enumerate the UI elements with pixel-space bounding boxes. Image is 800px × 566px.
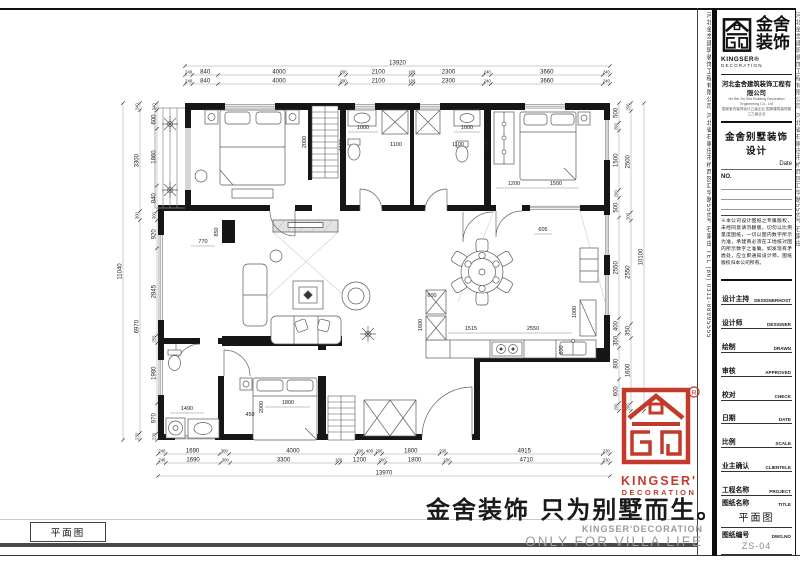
svg-text:1515: 1515 xyxy=(465,326,477,332)
svg-text:300: 300 xyxy=(222,458,230,463)
svg-text:400: 400 xyxy=(614,320,620,331)
title-block: 金舍 装饰 KINGSER® DECORATION 河北金舍建筑装饰工程有限公司… xyxy=(718,10,795,555)
svg-text:300: 300 xyxy=(135,211,140,219)
watermark-en-line2: ONLY FOR VILLA LIFE xyxy=(400,534,703,549)
lamp-icon xyxy=(289,114,296,121)
title-block-field: 工程名称PROJECT xyxy=(721,472,792,496)
svg-text:230: 230 xyxy=(135,432,140,440)
svg-text:240: 240 xyxy=(603,79,611,84)
svg-text:240: 240 xyxy=(484,70,492,75)
svg-text:3300: 3300 xyxy=(277,458,291,464)
kitchen xyxy=(426,290,596,358)
svg-text:1000: 1000 xyxy=(461,125,473,131)
field-label-en: PROJECT xyxy=(769,489,791,494)
field-label-cn: 比例 xyxy=(722,436,736,446)
svg-text:1600: 1600 xyxy=(626,363,632,377)
kingser-red-seal: R KINGSER' DECORATION xyxy=(616,384,702,498)
svg-text:600: 600 xyxy=(152,114,158,125)
date-label: Date xyxy=(721,161,792,170)
svg-text:1000: 1000 xyxy=(572,306,578,318)
svg-text:350: 350 xyxy=(626,325,632,336)
svg-text:2500: 2500 xyxy=(626,154,632,168)
sideboard xyxy=(580,248,598,282)
field-label-cn: 设计主持 xyxy=(722,293,749,303)
field-label-cn: 日期 xyxy=(722,412,736,422)
svg-text:13920: 13920 xyxy=(389,61,406,67)
title-block-field: 图纸编号DWG.NOZS-04 xyxy=(721,528,792,555)
field-label-cn: 业主确认 xyxy=(722,460,749,470)
field-label-en: CLIENTELE xyxy=(765,465,791,470)
svg-text:1690: 1690 xyxy=(186,458,200,464)
side-text-right: 河北金舍建筑装饰工程有限公司 河北省石家庄市桥西区汇华路556号 石家庄 xyxy=(796,12,800,552)
svg-text:600: 600 xyxy=(559,345,565,354)
svg-text:2100: 2100 xyxy=(372,70,386,76)
dining-table xyxy=(450,239,513,305)
bathroom-1 xyxy=(348,110,408,160)
svg-text:2000: 2000 xyxy=(259,401,265,413)
field-value: 平面图 xyxy=(722,507,791,526)
title-block-field: 设计师DESIGNER xyxy=(721,305,792,329)
stairs-upper xyxy=(312,106,338,178)
no-line xyxy=(721,190,792,200)
svg-text:840: 840 xyxy=(200,79,211,85)
field-label-en: CHECK xyxy=(775,394,791,399)
svg-text:200: 200 xyxy=(340,70,348,75)
drawing-name-box: 平面图 xyxy=(30,522,106,542)
brand-cn-line2: 装饰 xyxy=(756,35,790,53)
watermark-en: KINGSER'DECORATION ONLY FOR VILLA LIFE xyxy=(400,524,703,549)
svg-text:500: 500 xyxy=(614,107,620,118)
tv-wall xyxy=(273,220,338,232)
living-room xyxy=(243,250,376,344)
no-line xyxy=(721,200,792,210)
svg-text:230: 230 xyxy=(152,432,157,440)
svg-text:230: 230 xyxy=(603,449,611,454)
svg-text:11040: 11040 xyxy=(118,263,124,280)
svg-text:100: 100 xyxy=(335,458,343,463)
svg-text:2845: 2845 xyxy=(152,284,158,298)
field-label-en: SCALE xyxy=(775,441,791,446)
svg-text:850: 850 xyxy=(214,227,220,236)
svg-text:6970: 6970 xyxy=(135,319,141,333)
laundry-bath xyxy=(166,350,219,438)
svg-text:800: 800 xyxy=(614,358,620,369)
svg-text:240: 240 xyxy=(158,458,166,463)
lamp-icon xyxy=(208,114,215,121)
svg-text:240: 240 xyxy=(152,103,157,111)
field-label-en: DRAWN xyxy=(774,346,791,351)
svg-text:1600: 1600 xyxy=(418,319,424,331)
svg-text:4710: 4710 xyxy=(520,458,534,464)
svg-text:13970: 13970 xyxy=(376,471,393,477)
svg-text:200: 200 xyxy=(379,458,387,463)
master-bed xyxy=(220,110,285,198)
company-name-en: He Bei Jin She Building Decoration Engin… xyxy=(721,97,792,107)
svg-text:2100: 2100 xyxy=(372,79,386,85)
svg-text:1800: 1800 xyxy=(404,449,418,455)
svg-text:R: R xyxy=(691,390,696,397)
title-block-logo: 金舍 装饰 xyxy=(721,10,792,54)
plant-icon xyxy=(360,326,376,342)
svg-text:255: 255 xyxy=(152,335,157,343)
svg-text:1860: 1860 xyxy=(152,150,158,164)
svg-text:1100: 1100 xyxy=(390,142,402,148)
svg-text:4000: 4000 xyxy=(272,70,286,76)
field-label-en: APPROVED xyxy=(765,370,791,375)
field-label-cn: 审核 xyxy=(722,365,736,375)
field-label-cn: 绘制 xyxy=(722,341,736,351)
title-block-field: 比例SCALE xyxy=(721,424,792,448)
bedroom2 xyxy=(494,112,590,180)
stairs-lower xyxy=(328,396,355,440)
kingser-seal-icon: R xyxy=(616,384,702,468)
svg-text:1500: 1500 xyxy=(550,181,562,187)
svg-text:3300: 3300 xyxy=(135,153,141,167)
field-label-cn: 图纸编号 xyxy=(722,529,749,539)
svg-text:840: 840 xyxy=(152,193,158,204)
no-line xyxy=(721,180,792,190)
svg-text:1285: 1285 xyxy=(484,140,490,152)
title-block-field: 设计主持DESIGNERHOST xyxy=(721,281,792,305)
svg-text:920: 920 xyxy=(152,229,158,240)
sheet-border-top xyxy=(0,8,796,10)
svg-text:240: 240 xyxy=(185,79,193,84)
svg-text:200: 200 xyxy=(626,103,631,111)
svg-text:200: 200 xyxy=(439,449,447,454)
svg-text:450: 450 xyxy=(245,412,254,418)
svg-text:1690: 1690 xyxy=(186,449,200,455)
svg-text:1470: 1470 xyxy=(320,406,326,418)
svg-text:1000: 1000 xyxy=(357,125,369,131)
svg-text:1100: 1100 xyxy=(339,139,345,151)
project-title: 金舍别墅装饰设计 xyxy=(721,121,792,161)
svg-text:770: 770 xyxy=(198,239,207,245)
bedroom3 xyxy=(240,378,317,440)
svg-text:605: 605 xyxy=(538,227,547,233)
svg-text:970: 970 xyxy=(152,413,158,424)
svg-text:2550: 2550 xyxy=(614,261,620,275)
svg-text:100: 100 xyxy=(408,70,416,75)
svg-text:200: 200 xyxy=(626,212,631,220)
watermark-en-line1: KINGSER'DECORATION xyxy=(400,524,703,534)
svg-text:2300: 2300 xyxy=(442,79,456,85)
kingser-red-text: KINGSER' xyxy=(616,474,702,488)
svg-text:300: 300 xyxy=(152,211,157,219)
svg-text:600: 600 xyxy=(427,293,436,299)
title-block-field: 图纸名称TITLE平面图 xyxy=(721,496,792,528)
field-label-cn: 工程名称 xyxy=(722,484,749,494)
title-block-field: 审核APPROVED xyxy=(721,353,792,377)
svg-text:200: 200 xyxy=(340,79,348,84)
svg-text:840: 840 xyxy=(200,70,211,76)
svg-text:10100: 10100 xyxy=(639,248,645,265)
title-block-field: 绘制DRAWN xyxy=(721,329,792,353)
svg-text:240: 240 xyxy=(135,103,140,111)
field-label-cn: 设计师 xyxy=(722,317,742,327)
brand-en-sub: DECORATION xyxy=(721,63,792,68)
title-block-field: 日期DATE xyxy=(721,401,792,425)
chair xyxy=(195,170,207,182)
svg-text:200: 200 xyxy=(375,449,383,454)
tv xyxy=(288,223,323,228)
svg-text:2550: 2550 xyxy=(527,326,539,332)
svg-text:1490: 1490 xyxy=(181,406,193,412)
svg-text:1100: 1100 xyxy=(452,142,464,148)
copyright-notes: ※本公司设计图纸之专属版权，未经同意请勿翻版。切勿以比例量度图纸，一切以图内数字… xyxy=(721,215,792,279)
svg-text:100: 100 xyxy=(408,79,416,84)
svg-text:240: 240 xyxy=(484,79,492,84)
svg-text:3660: 3660 xyxy=(540,79,554,85)
svg-text:4000: 4000 xyxy=(286,449,300,455)
svg-text:240: 240 xyxy=(158,449,166,454)
svg-text:2300: 2300 xyxy=(442,70,456,76)
title-block-fields: 设计主持DESIGNERHOST设计师DESIGNER绘制DRAWN审核APPR… xyxy=(721,279,792,555)
svg-text:300: 300 xyxy=(221,449,229,454)
kingser-seal-icon xyxy=(721,16,753,54)
field-label-cn: 校对 xyxy=(722,389,736,399)
drawing-sheet: 河北金舍建筑装饰工程有限公司 河北省石家庄市桥西区汇华路556号 石家庄 TEL… xyxy=(0,0,800,566)
field-label-en: DESIGNERHOST xyxy=(754,298,791,303)
field-label-en: DATE xyxy=(779,417,791,422)
svg-text:240: 240 xyxy=(185,70,193,75)
svg-text:230: 230 xyxy=(603,458,611,463)
svg-text:2550: 2550 xyxy=(626,265,632,279)
svg-text:4000: 4000 xyxy=(272,79,286,85)
field-value: ZS-04 xyxy=(722,539,791,553)
field-label-en: DESIGNER xyxy=(767,322,791,327)
svg-text:200: 200 xyxy=(356,449,364,454)
field-label-cn: 图纸名称 xyxy=(722,497,749,507)
svg-text:2000: 2000 xyxy=(302,136,308,148)
svg-text:1800: 1800 xyxy=(282,400,294,406)
svg-text:400: 400 xyxy=(366,449,374,454)
entry-closet xyxy=(364,400,416,436)
svg-text:1200: 1200 xyxy=(508,181,520,187)
svg-text:4915: 4915 xyxy=(518,449,532,455)
title-block-field: 业主确认CLIENTELE xyxy=(721,448,792,472)
svg-text:200: 200 xyxy=(614,190,619,198)
svg-text:500: 500 xyxy=(614,202,620,213)
sheet-border-bottom xyxy=(0,555,800,556)
company-name: 河北金舍建筑装饰工程有限公司 xyxy=(721,74,792,97)
company-cert: 国家室内装饰设计乙级企业 国家建筑装饰施工乙级企业 xyxy=(721,107,792,117)
svg-text:350: 350 xyxy=(614,335,620,346)
svg-text:1200: 1200 xyxy=(353,458,367,464)
bathroom-2 xyxy=(416,110,480,162)
title-block-field: 校对CHECK xyxy=(721,377,792,401)
watermark-slogan: 金舍装饰 只为别墅而生。 xyxy=(426,490,722,525)
brand-en: KINGSER® xyxy=(721,56,792,63)
svg-text:200: 200 xyxy=(443,458,451,463)
svg-text:200: 200 xyxy=(614,123,619,131)
svg-text:240: 240 xyxy=(603,70,611,75)
svg-text:3660: 3660 xyxy=(540,70,554,76)
svg-text:1500: 1500 xyxy=(614,153,620,167)
svg-text:1800: 1800 xyxy=(408,458,422,464)
furniture xyxy=(162,110,598,440)
svg-text:1980: 1980 xyxy=(152,366,158,380)
